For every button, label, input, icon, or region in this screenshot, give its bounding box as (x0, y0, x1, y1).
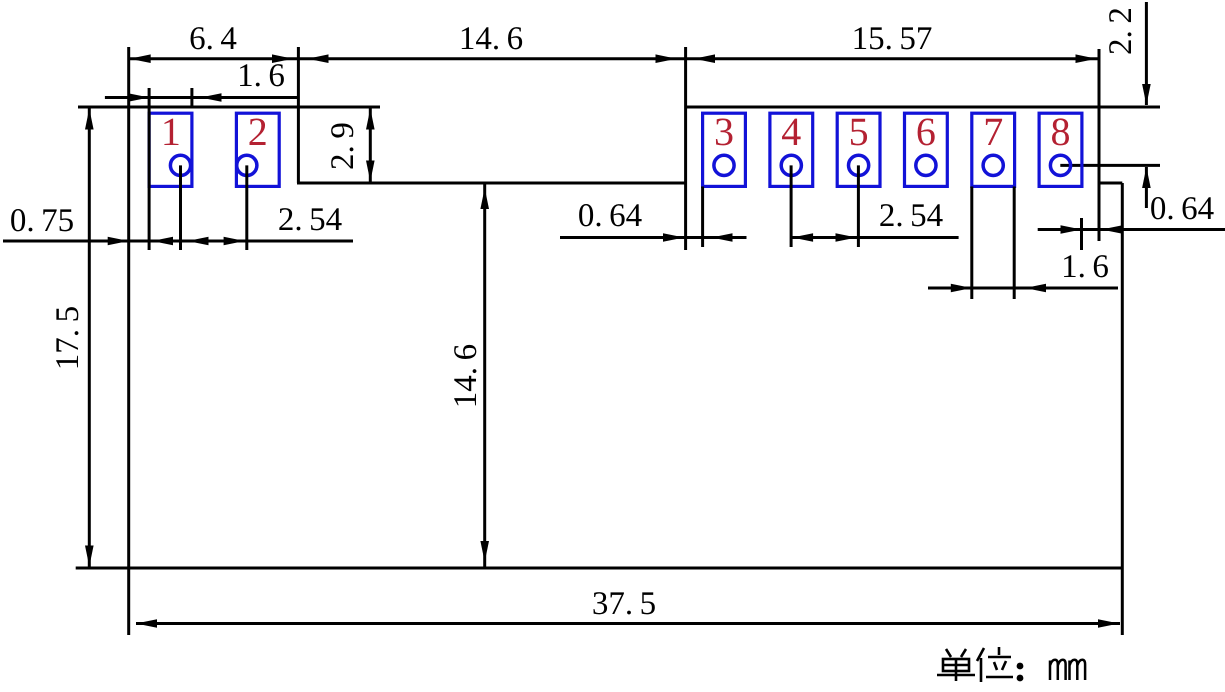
svg-text:2. 9: 2. 9 (325, 122, 361, 170)
svg-text:6. 4: 6. 4 (189, 21, 237, 57)
svg-text:2. 54: 2. 54 (879, 198, 943, 234)
svg-text:14. 6: 14. 6 (459, 21, 523, 57)
svg-text:4: 4 (781, 109, 801, 154)
svg-text:14. 6: 14. 6 (448, 344, 484, 408)
svg-text:0. 75: 0. 75 (10, 203, 74, 239)
svg-text:1. 6: 1. 6 (1061, 249, 1109, 285)
svg-text:2: 2 (248, 109, 268, 154)
svg-text:8: 8 (1051, 109, 1071, 154)
svg-text:6: 6 (916, 109, 936, 154)
svg-text:0. 64: 0. 64 (578, 198, 642, 234)
svg-text:17. 5: 17. 5 (50, 306, 86, 370)
svg-text:5: 5 (849, 109, 869, 154)
svg-text:3: 3 (714, 109, 734, 154)
svg-text:7: 7 (983, 109, 1003, 154)
svg-text:0. 64: 0. 64 (1150, 191, 1214, 227)
svg-text:1. 6: 1. 6 (237, 58, 285, 94)
svg-text:1: 1 (161, 109, 181, 154)
svg-text:2. 2: 2. 2 (1103, 7, 1139, 55)
svg-text:2. 54: 2. 54 (278, 202, 342, 238)
svg-text:15. 57: 15. 57 (852, 21, 933, 57)
svg-text:37. 5: 37. 5 (592, 586, 656, 622)
